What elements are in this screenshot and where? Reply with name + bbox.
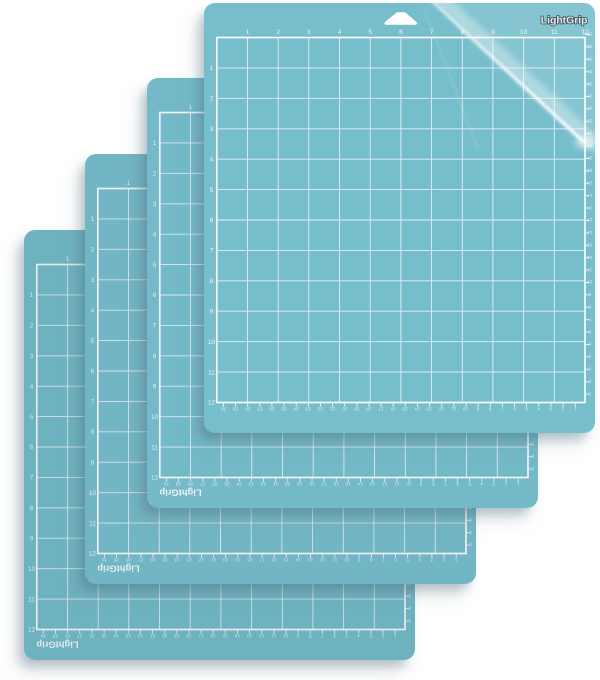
svg-text:28: 28 [245,406,251,412]
svg-text:7: 7 [501,406,504,412]
svg-text:29: 29 [233,406,239,412]
svg-text:20: 20 [342,406,348,412]
svg-text:10: 10 [587,280,592,285]
svg-text:6: 6 [513,406,516,412]
svg-text:1: 1 [246,29,250,36]
svg-text:11: 11 [451,406,456,412]
svg-text:13: 13 [587,243,592,248]
svg-text:3: 3 [549,406,552,412]
svg-text:14: 14 [415,406,421,412]
svg-text:18: 18 [366,406,372,412]
svg-text:12: 12 [439,406,445,412]
svg-text:8: 8 [210,278,214,285]
svg-text:11: 11 [208,369,215,376]
svg-text:4: 4 [210,156,214,163]
svg-text:22: 22 [317,406,323,412]
svg-text:12: 12 [208,400,216,407]
svg-text:2: 2 [561,406,564,412]
svg-text:3: 3 [210,126,214,133]
svg-text:3: 3 [307,29,311,36]
svg-text:27: 27 [257,406,263,412]
svg-text:19: 19 [354,406,360,412]
svg-text:23: 23 [305,406,311,412]
svg-text:11: 11 [587,267,592,272]
svg-text:9: 9 [476,406,479,412]
svg-text:16: 16 [390,406,396,412]
svg-text:18: 18 [587,181,592,186]
svg-text:6: 6 [210,217,214,224]
svg-text:20: 20 [587,156,592,161]
svg-text:5: 5 [210,187,214,194]
svg-text:2: 2 [276,29,280,36]
svg-text:17: 17 [587,193,592,198]
svg-text:25: 25 [281,406,287,412]
svg-text:15: 15 [402,406,408,412]
svg-text:16: 16 [587,205,592,210]
svg-text:19: 19 [587,168,592,173]
svg-text:14: 14 [587,230,592,235]
svg-text:4: 4 [537,406,540,412]
svg-text:10: 10 [208,339,216,346]
svg-text:5: 5 [368,29,372,36]
svg-text:10: 10 [463,406,469,412]
svg-text:6: 6 [399,29,403,36]
svg-text:7: 7 [210,248,214,255]
svg-text:30: 30 [220,406,226,412]
svg-text:5: 5 [525,406,528,412]
svg-text:24: 24 [293,406,299,412]
svg-text:13: 13 [427,406,433,412]
svg-text:26: 26 [269,406,275,412]
svg-text:1: 1 [574,406,577,412]
svg-text:8: 8 [489,406,492,412]
svg-text:21: 21 [330,406,336,412]
svg-text:15: 15 [587,218,592,223]
svg-text:1: 1 [210,65,214,72]
svg-text:9: 9 [210,308,214,315]
svg-text:12: 12 [587,255,592,260]
svg-text:4: 4 [338,29,342,36]
svg-text:17: 17 [378,406,384,412]
svg-text:2: 2 [210,96,214,103]
